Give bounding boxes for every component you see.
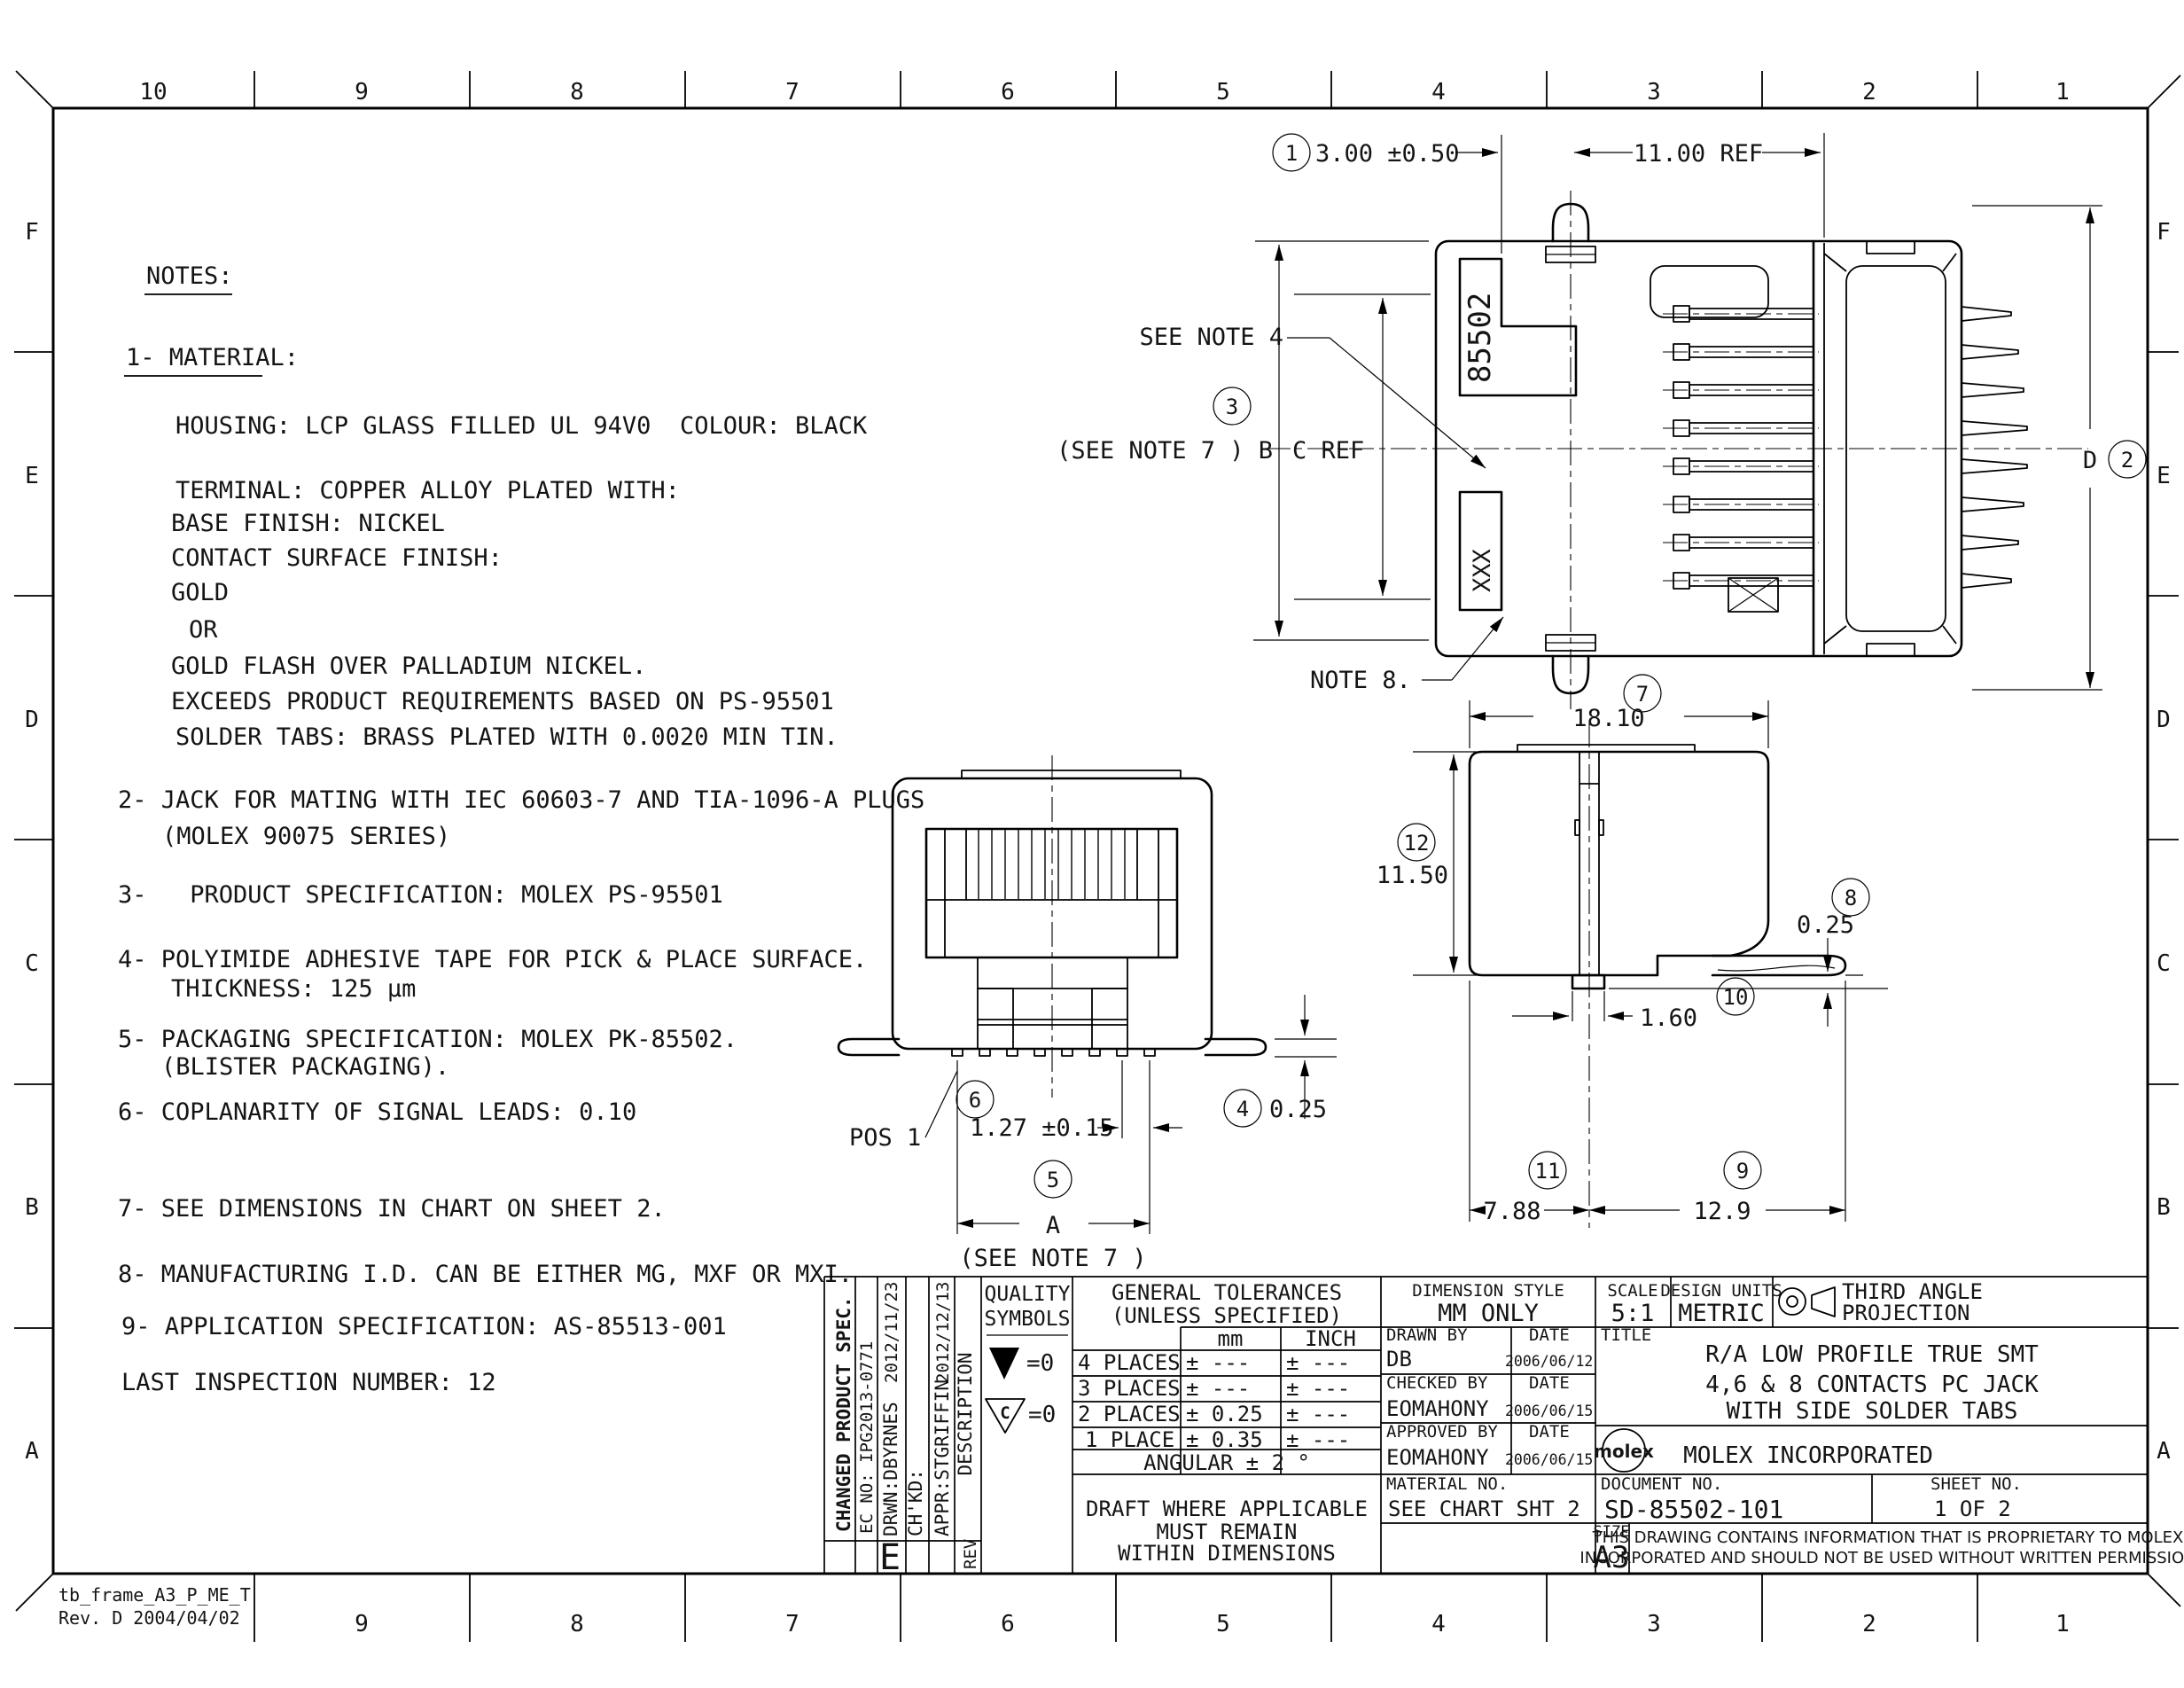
svg-text:6: 6: [969, 1088, 981, 1113]
svg-text:± ---: ± ---: [1286, 1402, 1350, 1426]
drawing-title: R/A LOW PROFILE TRUE SMT: [1705, 1341, 2039, 1368]
dim-text: A: [1046, 1212, 1060, 1239]
quality-eq: =0: [1026, 1350, 1054, 1377]
svg-text:± ---: ± ---: [1286, 1376, 1350, 1401]
frame-template-name: tb_frame_A3_P_ME_T: [58, 1584, 251, 1606]
note-line: BASE FINISH: NICKEL: [171, 510, 445, 537]
approved-date-value: 2006/06/15: [1505, 1451, 1593, 1468]
title-label: TITLE: [1601, 1325, 1651, 1345]
notes: NOTES: 1- MATERIAL: HOUSING: LCP GLASS F…: [118, 262, 924, 1396]
date-label: DATE: [1529, 1373, 1570, 1393]
zone-number: 6: [1001, 79, 1015, 105]
note-line: 5- PACKAGING SPECIFICATION: MOLEX PK-855…: [118, 1026, 737, 1053]
molex-logo: molex: [1594, 1429, 1654, 1472]
frame-template-rev: Rev. D 2004/04/02: [58, 1607, 240, 1629]
row-letter: C: [25, 950, 39, 977]
scale-value: 5:1: [1611, 1300, 1655, 1327]
draft-note: DRAFT WHERE APPLICABLE: [1086, 1497, 1368, 1521]
ec-number: EC NO: IPG2013-0771: [857, 1341, 877, 1534]
zone-number: 10: [139, 79, 167, 105]
svg-text:2: 2: [2121, 448, 2133, 473]
top-view: 85502 XXX: [1057, 133, 2146, 709]
design-units-label: DESIGN UNITS: [1660, 1281, 1782, 1301]
row-letter: E: [2157, 463, 2171, 489]
front-view-dimensions: POS 1 6 1.27 ±0.15 A 5 (SEE NOTE 7 ) 4 0…: [849, 995, 1337, 1272]
proprietary-notice: INCORPORATED AND SHOULD NOT BE USED WITH…: [1579, 1549, 2184, 1567]
checked-by-value: EOMAHONY: [1386, 1396, 1489, 1421]
design-units-value: METRIC: [1678, 1300, 1765, 1327]
date-label: DATE: [1529, 1422, 1570, 1442]
note-line: 9- APPLICATION SPECIFICATION: AS-85513-0…: [121, 1313, 727, 1340]
top-view-dimensions: 1 3.00 ±0.50 11.00 REF 3 (SEE NOTE 7 ) B…: [1057, 133, 2146, 694]
sheet-label: SHEET NO.: [1930, 1474, 2022, 1494]
dim-text: 3.00 ±0.50: [1315, 140, 1460, 168]
dimension-style-label: DIMENSION STYLE: [1412, 1281, 1564, 1301]
drawn-date-rev: 2012/11/23: [882, 1282, 901, 1383]
zone-number: 2: [1862, 79, 1876, 105]
drawn-date-value: 2006/06/12: [1505, 1353, 1593, 1370]
note-line: 7- SEE DIMENSIONS IN CHART ON SHEET 2.: [118, 1195, 666, 1223]
dim-text: 1.27 ±0.15: [970, 1114, 1114, 1142]
zone-number: 9: [355, 79, 369, 105]
dim-text: D: [2083, 447, 2097, 474]
quality-symbols: QUALITY SYMBOLS =0 C =0: [985, 1283, 1071, 1433]
svg-text:± ---: ± ---: [1186, 1376, 1250, 1401]
projection-label: PROJECTION: [1842, 1301, 1970, 1325]
revision-description: CHANGED PRODUCT SPEC.: [833, 1296, 854, 1532]
zone-number: 1: [2055, 79, 2070, 105]
svg-text:± 0.35: ± 0.35: [1186, 1427, 1263, 1452]
svg-text:11: 11: [1535, 1159, 1561, 1184]
x-box-symbol: [1728, 578, 1778, 612]
col-header-inch: INCH: [1305, 1326, 1356, 1351]
company-name: MOLEX INCORPORATED: [1683, 1442, 1933, 1469]
proprietary-notice: THIS DRAWING CONTAINS INFORMATION THAT I…: [1592, 1528, 2184, 1547]
row-letter: F: [2157, 219, 2171, 246]
svg-text:9: 9: [1736, 1159, 1749, 1184]
svg-text:± ---: ± ---: [1286, 1350, 1350, 1375]
front-view: POS 1 6 1.27 ±0.15 A 5 (SEE NOTE 7 ) 4 0…: [838, 755, 1337, 1272]
note-line: 4- POLYIMIDE ADHESIVE TAPE FOR PICK & PL…: [118, 946, 867, 973]
svg-text:4: 4: [1236, 1097, 1249, 1121]
approved-date-rev: 2012/12/13: [933, 1282, 953, 1383]
part-marking: 85502: [1462, 293, 1498, 383]
note-line: 3- PRODUCT SPECIFICATION: MOLEX PS-95501: [118, 881, 723, 909]
approved-by-rev: APPR:STGRIFFIN: [932, 1379, 953, 1536]
zone-number: 3: [1647, 1611, 1661, 1637]
c-symbol: C: [1000, 1403, 1010, 1423]
datecode-marking: XXX: [1469, 549, 1496, 592]
document-label: DOCUMENT NO.: [1601, 1474, 1722, 1494]
drawn-by-value: DB: [1386, 1347, 1412, 1371]
zone-number: 3: [1647, 79, 1661, 105]
checked-by-label: CHECKED BY: [1386, 1373, 1488, 1393]
dim-text: 11.00 REF: [1634, 140, 1763, 168]
date-label: DATE: [1529, 1325, 1570, 1345]
pos-1-label: POS 1: [849, 1124, 921, 1152]
zone-numbers-top: 10 9 8 7 6 5 4 3 2 1: [139, 79, 2069, 105]
contact-springs: [1962, 307, 2027, 588]
note-line: LAST INSPECTION NUMBER: 12: [121, 1369, 496, 1396]
dim-text: 11.50: [1377, 862, 1448, 889]
svg-text:± ---: ± ---: [1286, 1427, 1350, 1452]
quality-label: QUALITY: [985, 1283, 1071, 1306]
scale-label: SCALE: [1607, 1281, 1657, 1301]
zone-number: 2: [1862, 1611, 1876, 1637]
svg-text:± ---: ± ---: [1186, 1350, 1250, 1375]
dim-text: C REF: [1292, 437, 1364, 465]
svg-text:5: 5: [1047, 1168, 1059, 1192]
dim-text: 18.10: [1572, 705, 1644, 732]
row-letter: D: [2157, 707, 2171, 733]
row-letter: C: [2157, 950, 2171, 977]
title-block: CHANGED PRODUCT SPEC. EC NO: IPG2013-077…: [824, 1277, 2184, 1578]
see-note-7-label: (SEE NOTE 7 ): [959, 1245, 1146, 1272]
dim-text: 0.25: [1797, 911, 1854, 939]
quality-eq: =0: [1028, 1402, 1056, 1428]
contact-pins: [1663, 306, 1819, 589]
note-line: EXCEEDS PRODUCT REQUIREMENTS BASED ON PS…: [171, 688, 834, 715]
dimension-style-value: MM ONLY: [1438, 1300, 1539, 1327]
zone-number: 4: [1431, 1611, 1446, 1637]
checked-date-value: 2006/06/15: [1505, 1403, 1593, 1419]
zone-number: 8: [570, 1611, 584, 1637]
note-line: SOLDER TABS: BRASS PLATED WITH 0.0020 MI…: [175, 723, 838, 751]
zone-number: 9: [355, 1611, 369, 1637]
rev-label: REV: [961, 1539, 980, 1569]
note-line: GOLD FLASH OVER PALLADIUM NICKEL.: [171, 653, 646, 680]
zone-number: 4: [1431, 79, 1446, 105]
svg-text:8: 8: [1845, 886, 1857, 910]
zone-ticks-top: [254, 71, 1977, 108]
zone-number: 7: [785, 1611, 799, 1637]
row-letter: E: [25, 463, 39, 489]
drawn-by-rev: DRWN:DBYRNES: [880, 1402, 901, 1536]
zone-numbers-bottom: 9 8 7 6 5 4 3 2 1: [355, 1611, 2070, 1637]
checked-by-rev: CH'KD:: [905, 1469, 926, 1536]
row-letter: F: [25, 219, 39, 246]
dim-text: 1.60: [1640, 1004, 1697, 1032]
row-letters-left: F E D C B A: [25, 219, 39, 1465]
row-letter: B: [2157, 1194, 2171, 1221]
drawing-title: WITH SIDE SOLDER TABS: [1727, 1398, 2018, 1425]
zone-number: 6: [1001, 1611, 1015, 1637]
col-header-mm: mm: [1218, 1326, 1244, 1351]
note-line: TERMINAL: COPPER ALLOY PLATED WITH:: [175, 477, 680, 504]
row-letter: D: [25, 707, 39, 733]
note-8-label: NOTE 8.: [1310, 667, 1411, 694]
svg-text:1: 1: [1285, 141, 1298, 166]
svg-text:10: 10: [1723, 985, 1749, 1010]
description-label: DESCRIPTION: [955, 1352, 976, 1475]
tolerance-table: GENERAL TOLERANCES (UNLESS SPECIFIED) mm…: [1078, 1280, 1368, 1566]
note-line: OR: [189, 616, 218, 644]
notes-heading: NOTES:: [146, 262, 233, 290]
dim-text: 7.88: [1483, 1198, 1540, 1225]
material-value: SEE CHART SHT 2: [1388, 1497, 1580, 1521]
tolerances-heading: GENERAL TOLERANCES: [1111, 1280, 1342, 1305]
svg-text:3 PLACES: 3 PLACES: [1078, 1376, 1181, 1401]
note-line: (BLISTER PACKAGING).: [161, 1053, 449, 1081]
note-line: THICKNESS: 125 μm: [171, 975, 416, 1003]
zone-number: 8: [570, 79, 584, 105]
row-letter: A: [25, 1438, 39, 1465]
zone-number: 5: [1216, 1611, 1230, 1637]
drawing-sheet: 10 9 8 7 6 5 4 3 2 1 9 8 7 6 5 4 3 2: [0, 0, 2184, 1688]
tolerances-subheading: (UNLESS SPECIFIED): [1111, 1303, 1342, 1328]
svg-text:2 PLACES: 2 PLACES: [1078, 1402, 1181, 1426]
note-line: 8- MANUFACTURING I.D. CAN BE EITHER MG, …: [118, 1261, 853, 1288]
note-line: CONTACT SURFACE FINISH:: [171, 544, 503, 572]
svg-text:4 PLACES: 4 PLACES: [1078, 1350, 1181, 1375]
drawn-by-label: DRAWN BY: [1386, 1325, 1468, 1345]
svg-text:12: 12: [1404, 831, 1430, 856]
sheet-value: 1 OF 2: [1934, 1497, 2011, 1521]
approved-by-label: APPROVED BY: [1386, 1422, 1498, 1442]
document-number: SD-85502-101: [1604, 1495, 1783, 1524]
drawing-title: 4,6 & 8 CONTACTS PC JACK: [1705, 1371, 2039, 1398]
note-line: (MOLEX 90075 SERIES): [162, 823, 450, 850]
svg-text:± 0.25: ± 0.25: [1186, 1402, 1263, 1426]
row-letter: A: [2157, 1438, 2171, 1465]
zone-number: 5: [1216, 79, 1230, 105]
draft-note: WITHIN DIMENSIONS: [1118, 1541, 1336, 1566]
row-letter: B: [25, 1194, 39, 1221]
zone-number: 7: [785, 79, 799, 105]
third-angle-projection-icon: [1779, 1287, 1835, 1317]
svg-text:7: 7: [1636, 682, 1649, 707]
note-line: 2- JACK FOR MATING WITH IEC 60603-7 AND …: [118, 786, 924, 814]
svg-text:1 PLACE: 1 PLACE: [1085, 1427, 1174, 1452]
note-line: 6- COPLANARITY OF SIGNAL LEADS: 0.10: [118, 1098, 636, 1126]
side-view-dimensions: 7 18.10 12 11.50 8 0.25 1.60: [1377, 675, 1869, 1225]
note-line: HOUSING: LCP GLASS FILLED UL 94V0 COLOUR…: [175, 412, 868, 440]
material-label: MATERIAL NO.: [1386, 1474, 1508, 1494]
revision-letter: E: [879, 1537, 901, 1578]
zone-ticks-bottom: [254, 1574, 1977, 1642]
dim-text: 12.9: [1693, 1198, 1751, 1225]
dim-text: (SEE NOTE 7 ) B: [1057, 437, 1273, 465]
note-line: GOLD: [171, 579, 229, 606]
angular-tolerance: ANGULAR ± 2 °: [1143, 1450, 1310, 1475]
see-note-4-label: SEE NOTE 4: [1139, 324, 1283, 351]
dim-text: 0.25: [1269, 1096, 1327, 1123]
filled-triangle-icon: [989, 1348, 1019, 1379]
material-heading: 1- MATERIAL:: [126, 344, 299, 371]
approved-by-value: EOMAHONY: [1386, 1445, 1489, 1470]
svg-text:molex: molex: [1594, 1441, 1654, 1462]
side-view: 7 18.10 12 11.50 8 0.25 1.60: [1377, 675, 1888, 1228]
svg-text:3: 3: [1226, 395, 1238, 419]
title-block-fields: DIMENSION STYLE MM ONLY SCALE 5:1 DESIGN…: [1386, 1279, 2184, 1575]
quality-label: SYMBOLS: [985, 1308, 1071, 1331]
row-letters-right: F E D C B A: [2157, 219, 2171, 1465]
zone-number: 1: [2055, 1611, 2070, 1637]
